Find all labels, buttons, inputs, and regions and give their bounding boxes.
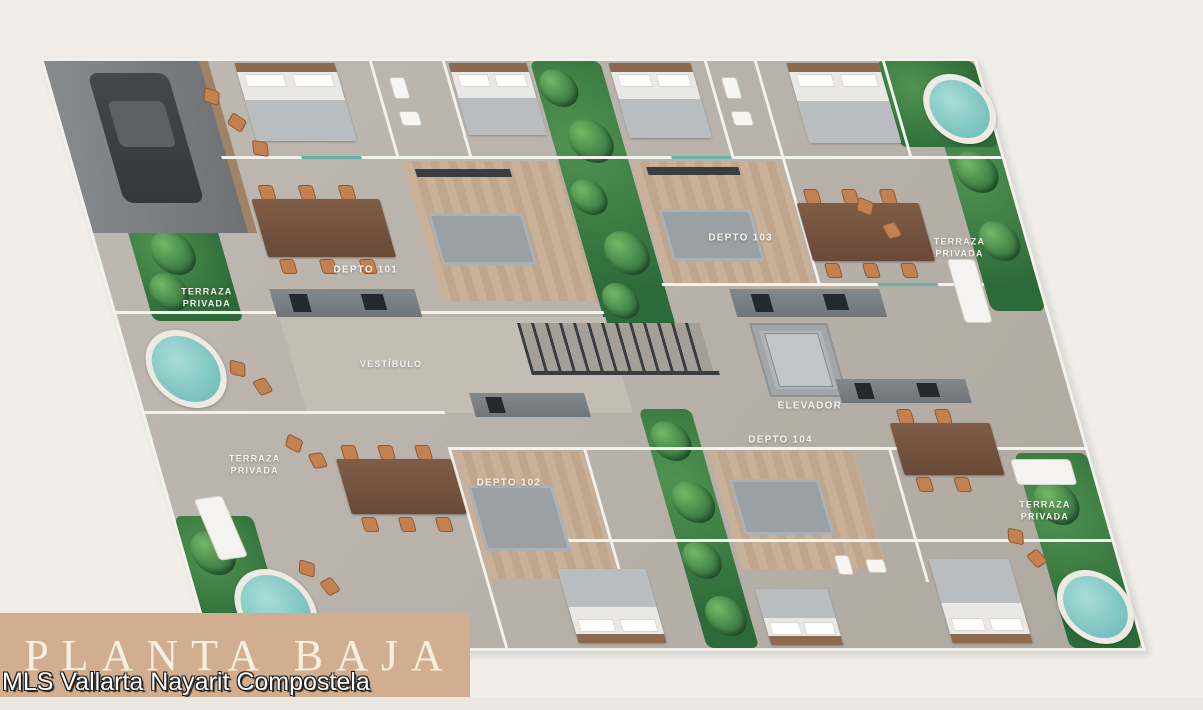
sun-lounger bbox=[1010, 459, 1077, 485]
dining-chair bbox=[398, 517, 417, 532]
bed bbox=[929, 559, 1033, 643]
terrace-chair bbox=[285, 433, 304, 453]
bed bbox=[608, 63, 712, 138]
sink-basin bbox=[865, 559, 888, 573]
dining-chair bbox=[337, 185, 356, 200]
terrace-chair bbox=[319, 577, 341, 597]
elevator-cab bbox=[764, 333, 833, 387]
wall bbox=[369, 61, 400, 158]
dining-chair bbox=[953, 477, 972, 492]
terrace-chair bbox=[252, 377, 274, 396]
bottom-strip bbox=[0, 697, 1203, 710]
sink-basin bbox=[398, 111, 422, 126]
toilet bbox=[388, 77, 410, 99]
sink bbox=[823, 294, 850, 310]
elevator-shaft bbox=[749, 323, 848, 397]
dining-chair bbox=[257, 185, 276, 200]
watermark: MLS Vallarta Nayarit Compostela bbox=[2, 668, 370, 697]
dining-table-104 bbox=[890, 423, 1005, 475]
dining-chair bbox=[879, 189, 898, 204]
dining-chair bbox=[824, 263, 843, 278]
terrace-chair bbox=[1007, 528, 1024, 546]
toilet bbox=[720, 77, 742, 99]
dining-chair bbox=[896, 409, 915, 424]
label-depto-103: DEPTO 103 bbox=[708, 232, 773, 245]
page: { "banner": { "title": "PLANTA BAJA", "c… bbox=[0, 0, 1203, 710]
label-depto-101: DEPTO 101 bbox=[334, 264, 399, 277]
label-depto-104: DEPTO 104 bbox=[748, 434, 813, 447]
bed bbox=[558, 569, 667, 643]
label-terraza-top-right: TERRAZA PRIVADA bbox=[934, 236, 985, 259]
dining-chair bbox=[361, 517, 380, 532]
sink-basin bbox=[730, 111, 754, 126]
bed bbox=[234, 63, 356, 141]
staircase bbox=[517, 323, 713, 373]
sink bbox=[916, 383, 940, 397]
dining-chair bbox=[414, 445, 433, 460]
dining-chair bbox=[279, 259, 298, 274]
label-terraza-bottom-right: TERRAZA PRIVADA bbox=[1019, 499, 1070, 522]
terrace-chair bbox=[307, 452, 328, 469]
stair-rail bbox=[531, 371, 720, 375]
glass-partition bbox=[878, 283, 939, 286]
terrace-chair bbox=[230, 359, 246, 377]
floor-plan: DEPTO 101 DEPTO 103 DEPTO 102 DEPTO 104 … bbox=[40, 58, 1146, 651]
dining-chair bbox=[900, 263, 919, 278]
dining-chair bbox=[862, 263, 881, 278]
dining-chair bbox=[435, 517, 454, 532]
label-terraza-bottom-left: TERRAZA PRIVADA bbox=[229, 453, 280, 476]
dining-chair bbox=[803, 189, 822, 204]
dining-chair bbox=[297, 185, 316, 200]
label-vestibulo: VESTÍBULO bbox=[360, 359, 422, 371]
dining-chair bbox=[377, 445, 396, 460]
tv-console bbox=[415, 169, 512, 177]
wall bbox=[704, 61, 735, 158]
label-elevador: ELEVADOR bbox=[778, 400, 842, 413]
terrace-chair bbox=[252, 140, 269, 157]
label-depto-102: DEPTO 102 bbox=[477, 477, 542, 490]
sofa-101 bbox=[427, 213, 537, 265]
wall bbox=[144, 411, 445, 414]
dining-table-101 bbox=[251, 199, 396, 257]
tv-console bbox=[646, 167, 740, 175]
dining-table-102 bbox=[336, 459, 467, 514]
bed bbox=[755, 589, 843, 645]
pool-bottom-right bbox=[1048, 570, 1143, 644]
dining-chair bbox=[340, 445, 359, 460]
glass-partition bbox=[671, 156, 732, 159]
glass-partition bbox=[301, 156, 362, 159]
sofa-104 bbox=[729, 479, 835, 535]
pool-left bbox=[136, 330, 236, 408]
label-terraza-top-left: TERRAZA PRIVADA bbox=[181, 286, 232, 309]
dining-chair bbox=[915, 477, 934, 492]
dining-chair bbox=[934, 409, 953, 424]
terrace-chair bbox=[299, 559, 315, 578]
sink bbox=[361, 294, 388, 310]
terrace-chair bbox=[227, 112, 248, 133]
